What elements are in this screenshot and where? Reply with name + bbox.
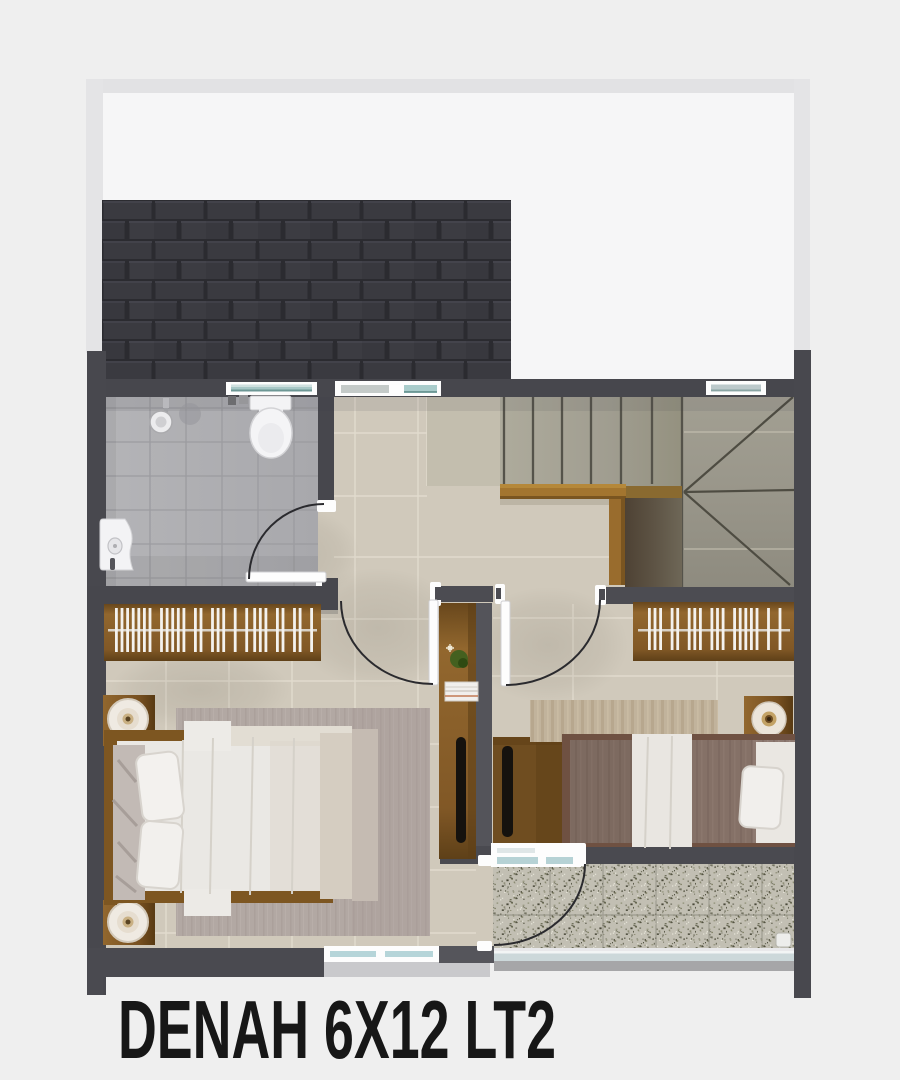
svg-text:DENAH 6X12 LT2: DENAH 6X12 LT2	[118, 983, 556, 1076]
